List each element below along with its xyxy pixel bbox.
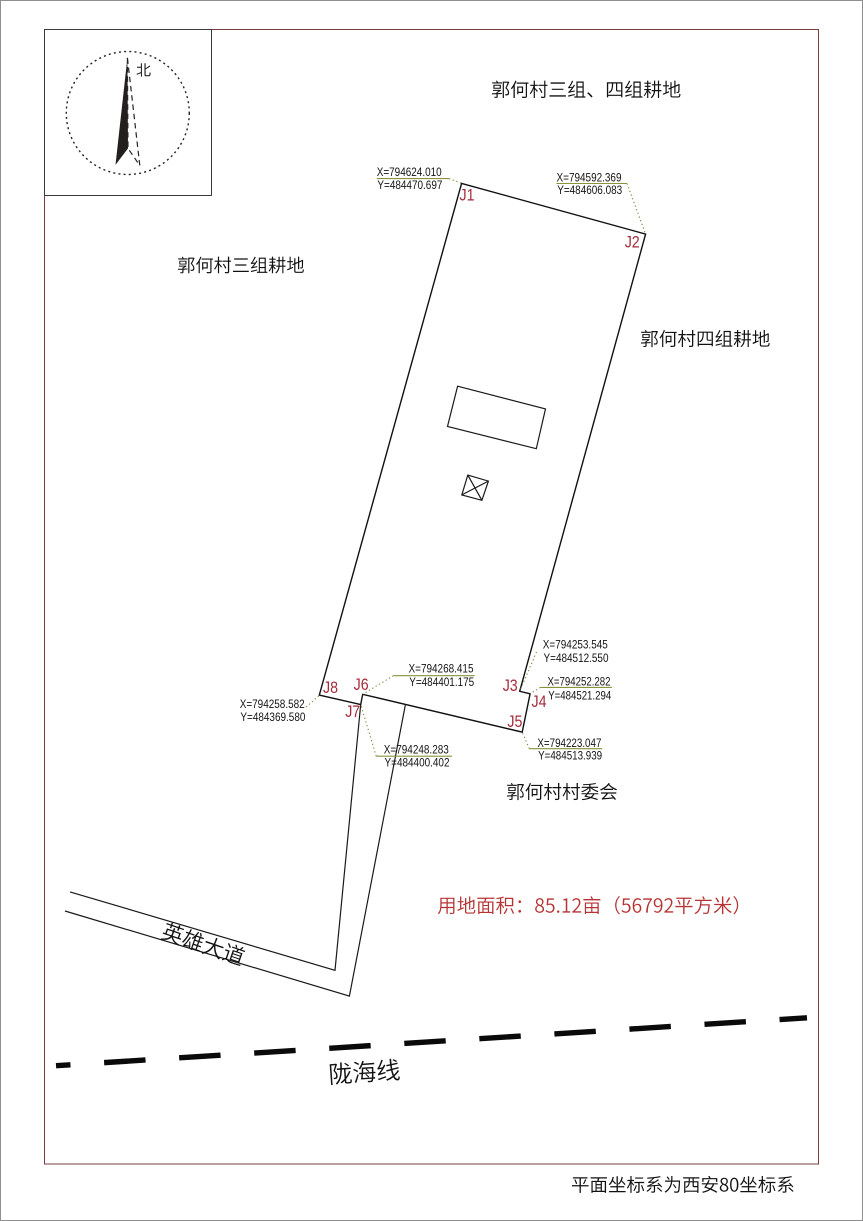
svg-text:Y=484401.175: Y=484401.175 — [409, 675, 474, 689]
svg-text:J3: J3 — [503, 677, 518, 695]
svg-text:Y=484512.550: Y=484512.550 — [544, 651, 609, 665]
svg-text:Y=484521.294: Y=484521.294 — [548, 688, 611, 702]
svg-text:Y=484606.083: Y=484606.083 — [557, 183, 622, 197]
svg-text:X=794252.282: X=794252.282 — [548, 675, 611, 689]
svg-text:J2: J2 — [625, 233, 640, 251]
svg-text:Y=484470.697: Y=484470.697 — [377, 178, 442, 192]
svg-text:J1: J1 — [460, 187, 475, 205]
svg-text:X=794268.415: X=794268.415 — [409, 662, 474, 676]
svg-text:J5: J5 — [507, 713, 522, 731]
svg-text:X=794258.582: X=794258.582 — [240, 697, 305, 711]
svg-text:Y=484369.580: Y=484369.580 — [240, 710, 305, 724]
svg-text:Y=484400.402: Y=484400.402 — [385, 756, 450, 770]
svg-text:J7: J7 — [345, 703, 360, 721]
svg-text:Y=484513.939: Y=484513.939 — [538, 749, 602, 763]
svg-text:J6: J6 — [354, 676, 369, 694]
svg-text:J4: J4 — [532, 693, 547, 711]
svg-text:X=794253.545: X=794253.545 — [543, 638, 608, 652]
svg-text:X=794248.283: X=794248.283 — [384, 743, 449, 757]
svg-text:J8: J8 — [323, 679, 338, 697]
